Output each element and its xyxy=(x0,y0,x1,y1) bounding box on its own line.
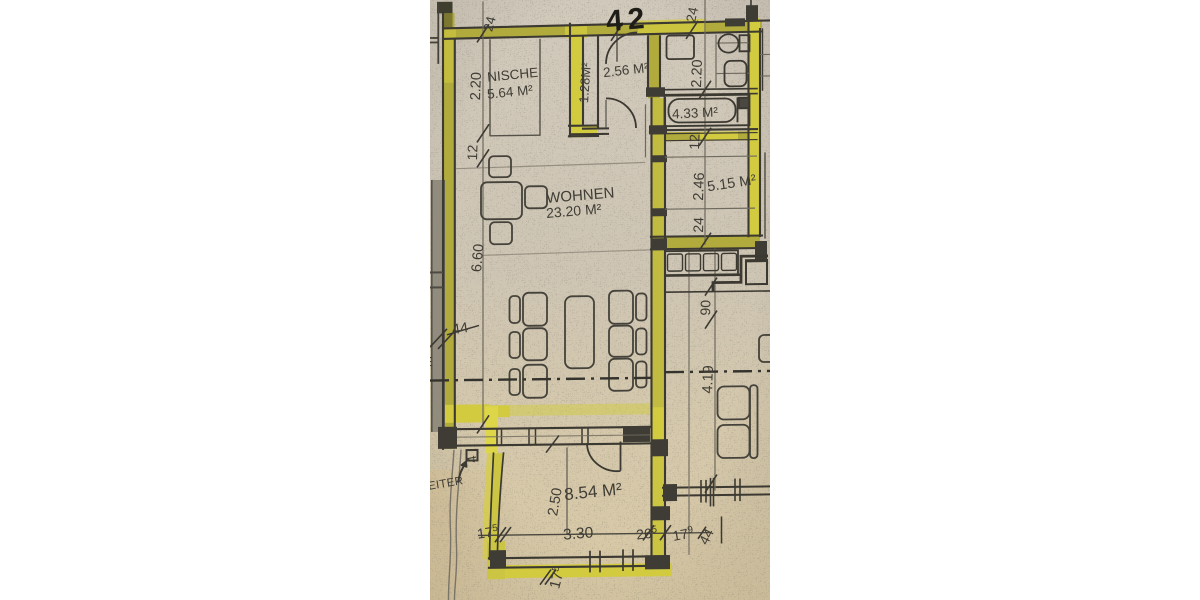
svg-text:2.46: 2.46 xyxy=(691,172,708,201)
svg-text:90: 90 xyxy=(697,300,714,316)
svg-text:12: 12 xyxy=(686,134,703,150)
svg-text:4.33 M²: 4.33 M² xyxy=(672,104,719,121)
svg-text:44: 44 xyxy=(451,320,469,338)
svg-text:2.20: 2.20 xyxy=(689,59,706,88)
svg-text:24: 24 xyxy=(690,217,707,233)
svg-text:42: 42 xyxy=(605,2,651,38)
svg-text:3.30: 3.30 xyxy=(563,524,595,543)
svg-text:1.28M²: 1.28M² xyxy=(576,61,594,103)
svg-text:4.19: 4.19 xyxy=(700,365,717,394)
svg-text:6.60: 6.60 xyxy=(469,243,487,272)
svg-text:2.20: 2.20 xyxy=(468,72,485,101)
svg-text:12: 12 xyxy=(464,144,481,160)
